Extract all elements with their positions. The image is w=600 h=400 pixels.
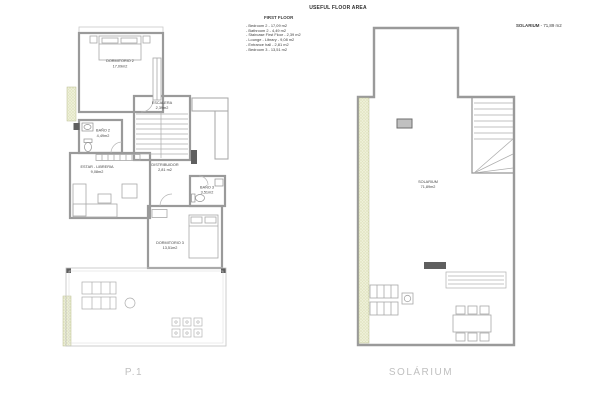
- room-label-dorm3-name: DORMITORIO 3: [156, 241, 184, 245]
- solarium-label-name: SOLARIUM: [418, 180, 438, 184]
- floor-plan-caption: P.1: [89, 367, 179, 378]
- room-label-bath2-name: BAÑO 2: [96, 128, 110, 133]
- room-label-dorm2-name: DORMITORIO 2: [106, 59, 134, 63]
- first-floor-plan: DORMITORIO 2 17,09m2 BAÑO 2 4,49m2 ESCAL…: [63, 27, 228, 346]
- closet-shafts: [192, 98, 228, 159]
- sun-loungers: [370, 285, 413, 315]
- planter-hatch-top: [67, 87, 76, 121]
- room-label-lounge-area: 9,08m2: [91, 170, 104, 174]
- terrace-furniture: [82, 282, 135, 309]
- lounge-furniture: [73, 155, 140, 218]
- planter-hatch-bottom: [63, 296, 71, 346]
- room-label-hall-name: DISTRIBUIDOR: [151, 163, 178, 167]
- plant-grid: [172, 318, 202, 337]
- solarium-label-area: 71,89m2: [421, 185, 436, 189]
- room-label-stair-area: 2,39m2: [156, 106, 169, 110]
- floor-plan-drawings: DORMITORIO 2 17,09m2 BAÑO 2 4,49m2 ESCAL…: [0, 0, 600, 400]
- room-label-dorm2-area: 17,09m2: [113, 65, 128, 69]
- solarium-plan-caption: SOLÁRIUM: [376, 367, 466, 378]
- dark-bench-block: [424, 262, 446, 269]
- skylight-symbol: [397, 119, 412, 128]
- solarium-wall-outline: [358, 28, 514, 345]
- stair-treads: [136, 112, 188, 158]
- solarium-staircase: [472, 97, 514, 173]
- room-label-bath2-area: 4,49m2: [97, 134, 110, 138]
- bathroom2-fixtures: [82, 123, 93, 152]
- solarium-plan: SOLARIUM 71,89m2: [358, 28, 514, 345]
- room-label-lounge-name: ESTAR - LIBRERIA: [80, 165, 114, 169]
- room-label-bath3-name: BAÑO 3: [200, 185, 214, 190]
- room-label-hall-area: 2,81 m2: [158, 168, 172, 172]
- bed-symbol-dorm3: [152, 210, 218, 259]
- room-label-dorm3-area: 13,51m2: [163, 246, 178, 250]
- room-label-stair-name: ESCALERA: [152, 101, 173, 105]
- solarium-label: SOLARIUM 71,89m2: [418, 180, 438, 189]
- solarium-planter-hatch: [359, 98, 369, 343]
- dining-set: [453, 306, 491, 341]
- striped-deck-band: [446, 272, 506, 288]
- room-label-bath3-area: 3,51m2: [201, 191, 214, 195]
